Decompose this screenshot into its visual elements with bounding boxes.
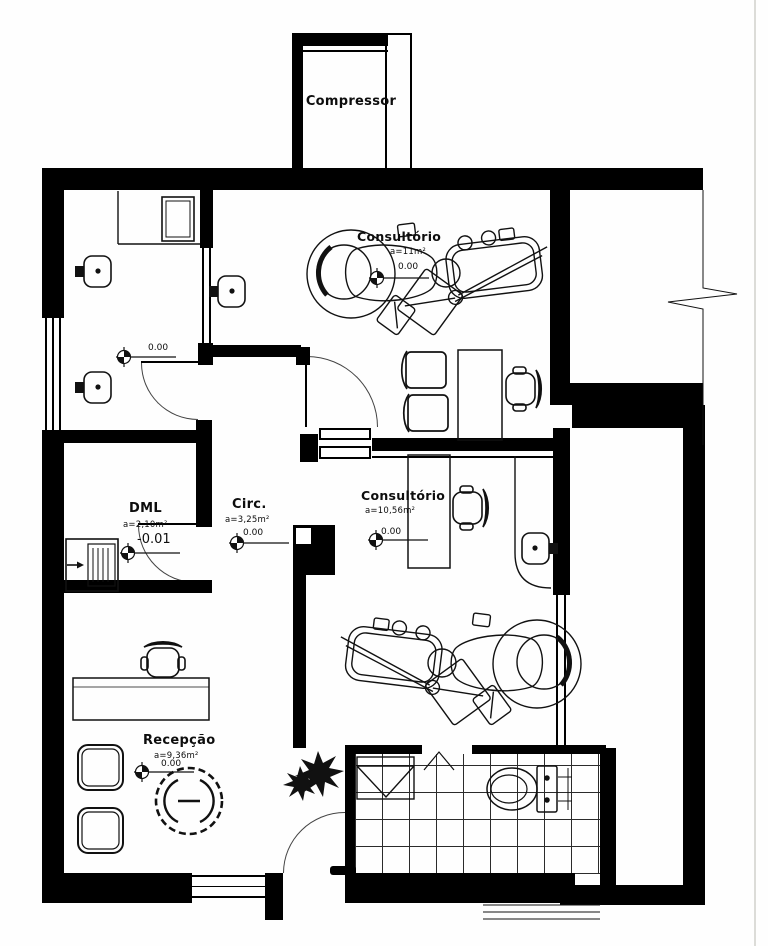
armchair: [78, 808, 123, 853]
shower-tray-icon: [357, 757, 414, 799]
office-chair: [453, 486, 488, 530]
room-label-consultorio-2: Consultório: [361, 488, 445, 503]
waiting-chair: [404, 394, 448, 432]
sink-icon: [75, 256, 111, 287]
level-value: 0.00: [381, 527, 401, 537]
level-value: 0.00: [243, 528, 263, 538]
service-counter: [118, 191, 200, 244]
folding-door: [424, 752, 454, 770]
sink-icon: [209, 276, 245, 307]
plant-icon: [283, 751, 344, 801]
sink-icon: [75, 372, 111, 403]
waiting-chair: [402, 351, 446, 389]
room-area-dml: a=2,10m²: [123, 520, 168, 530]
level-value: 0.00: [161, 759, 181, 769]
level-value: 0.00: [148, 343, 168, 353]
sink-icon: [522, 533, 558, 564]
room-area-circ: a=3,25m²: [225, 515, 270, 525]
room-area-consultorio-2: a=10,56m²: [365, 506, 415, 516]
exterior-steps: [483, 905, 600, 919]
toilet-icon: [487, 766, 572, 812]
floor-plan-canvas: Compressor Consultório a=11m² 0.00 0.00 …: [0, 0, 768, 946]
round-table-with-chairs: [156, 768, 222, 834]
room-label-compressor: Compressor: [303, 94, 399, 109]
room-label-recepcao: Recepção: [143, 733, 215, 748]
level-value: -0.01: [137, 532, 171, 547]
utility-sink: [66, 539, 118, 591]
armchair: [78, 745, 123, 790]
room-area-consultorio-1: a=11m²: [390, 247, 426, 257]
room-label-dml: DML: [129, 501, 162, 516]
level-value: 0.00: [398, 262, 418, 272]
office-chair: [141, 642, 185, 677]
plan-symbols: [0, 0, 768, 946]
wall-break-symbol: [668, 190, 737, 445]
dental-chair-unit-2: [335, 613, 581, 726]
reception-desk: [73, 678, 209, 720]
office-chair: [506, 367, 541, 411]
desk: [458, 350, 502, 440]
room-label-consultorio-1: Consultório: [357, 229, 441, 244]
counter-edge: [515, 456, 551, 588]
room-label-circ: Circ.: [232, 497, 267, 512]
